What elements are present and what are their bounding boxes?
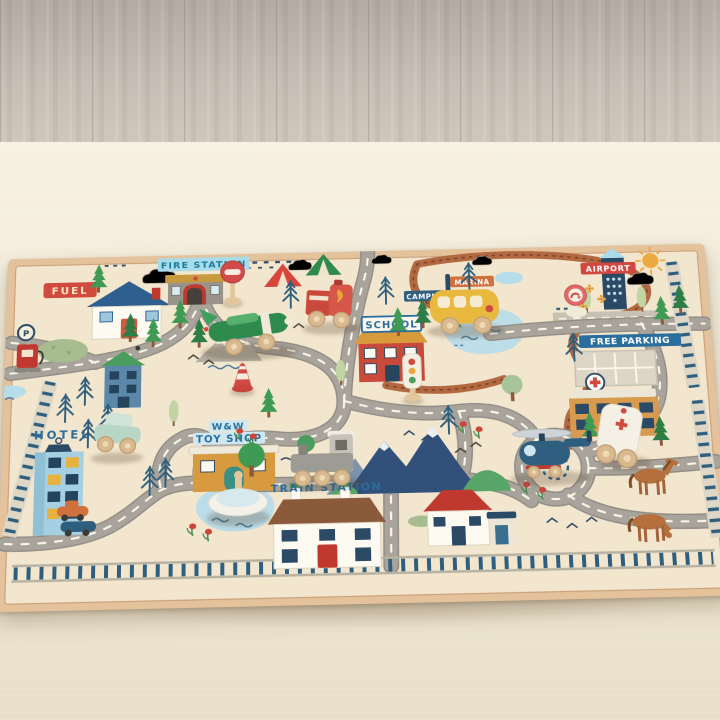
label-free-parking: FREE PARKING — [590, 336, 671, 347]
label-airport: AIRPORT — [585, 263, 630, 273]
play-rug: FUEL FIRE STATION — [0, 244, 720, 613]
wood-floor — [0, 0, 720, 142]
rug-art: FUEL FIRE STATION — [0, 244, 720, 613]
label-parking-sign: P — [23, 329, 30, 338]
rug-wrap: FUEL FIRE STATION — [0, 216, 720, 613]
label-hotel: HOTEL — [34, 428, 92, 443]
label-fuel: FUEL — [51, 285, 88, 297]
toy-turn-sign — [564, 285, 588, 318]
photo-scene: FUEL FIRE STATION — [0, 0, 720, 720]
toy-yellow-bus — [426, 289, 504, 339]
